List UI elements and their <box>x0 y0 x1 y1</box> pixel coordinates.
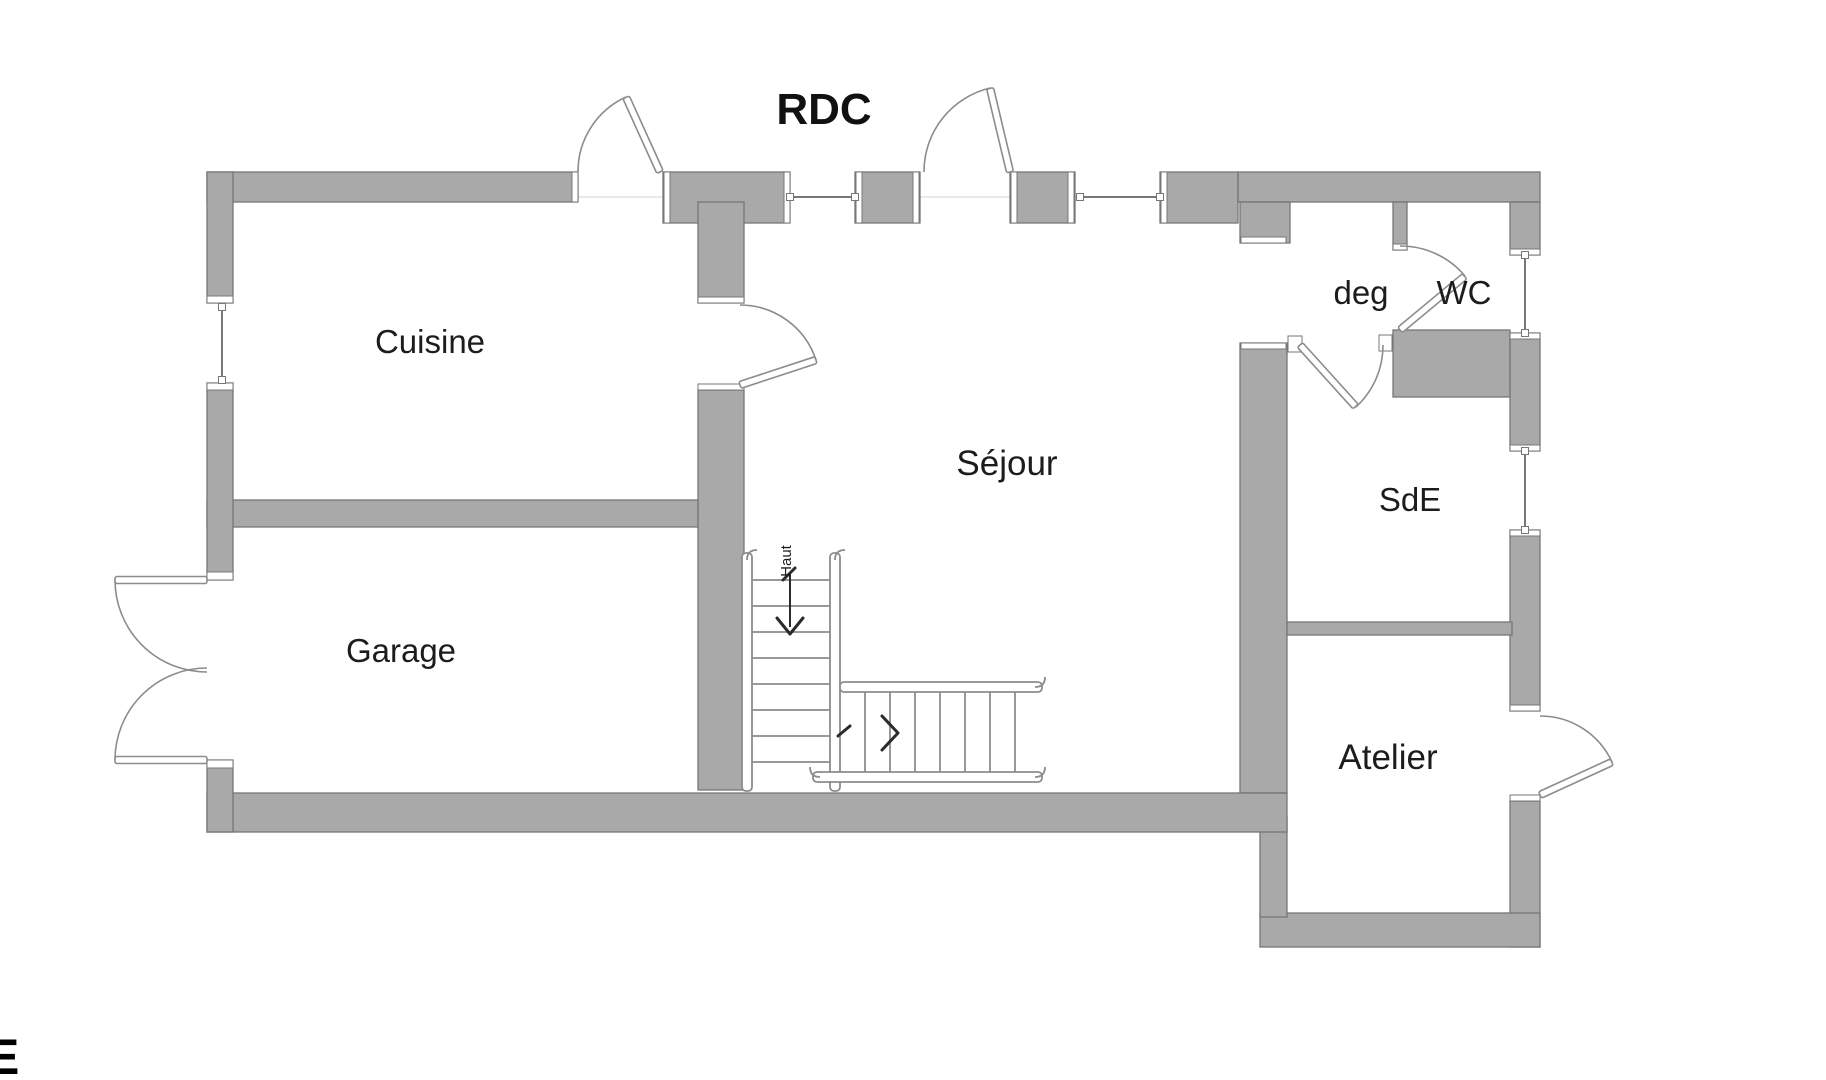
window-nub <box>219 377 226 384</box>
opening-jamb <box>207 296 233 303</box>
garage-double-door <box>115 577 207 764</box>
wall-segment <box>855 172 920 223</box>
opening-jamb <box>1241 237 1286 243</box>
wall-segment <box>698 202 744 303</box>
wall-segment <box>207 172 578 202</box>
door-cuisine-sejour <box>739 305 817 388</box>
wall-segment <box>1510 202 1540 255</box>
page-title: RDC <box>776 85 871 134</box>
stair-rail <box>742 553 752 791</box>
room-label-sde: SdE <box>1379 481 1441 518</box>
windows <box>219 194 1529 534</box>
door-leaf <box>623 96 663 174</box>
opening-jamb <box>1379 335 1392 351</box>
wall-segment <box>698 390 744 790</box>
window-nub <box>1157 194 1164 201</box>
floor-plan: Haut RDC Cuisine Garage Séjour deg WC Sd… <box>0 0 1826 1080</box>
window-nub <box>1522 448 1529 455</box>
window-nub <box>1522 527 1529 534</box>
door-atelier-exterior <box>1539 716 1614 798</box>
window-nub <box>1522 252 1529 259</box>
opening-jambs <box>207 172 1540 801</box>
stair-treads <box>752 580 1015 772</box>
window-nub <box>1522 330 1529 337</box>
room-label-wc: WC <box>1437 274 1492 311</box>
door-leaf <box>1297 343 1358 409</box>
window-nub <box>787 194 794 201</box>
opening-jamb <box>1510 795 1540 801</box>
wall-segment <box>1238 172 1540 202</box>
wall-segment <box>1240 343 1287 793</box>
window-nub <box>1077 194 1084 201</box>
opening-jamb <box>1510 705 1540 711</box>
door-swing-arc <box>1540 716 1612 762</box>
door-entrance <box>924 88 1013 173</box>
opening-jamb <box>1393 244 1407 250</box>
clipped-letter: E <box>0 1029 19 1080</box>
stair-direction-label: Haut <box>778 544 795 577</box>
door-leaf <box>115 577 207 584</box>
opening-jamb <box>664 172 670 223</box>
wall-segment <box>1510 530 1540 711</box>
wall-segment <box>1510 333 1540 451</box>
opening-jamb <box>698 384 744 390</box>
opening-jamb <box>572 172 578 202</box>
room-label-atelier: Atelier <box>1338 738 1438 777</box>
wall-segment <box>207 172 233 303</box>
wall-segment <box>207 793 1287 832</box>
door-swing-arc <box>924 88 990 172</box>
door-cuisine-exterior <box>578 96 663 174</box>
opening-jamb <box>913 172 919 223</box>
door-deg-sde <box>1297 343 1383 409</box>
room-label-cuisine: Cuisine <box>375 323 485 360</box>
wall-segment <box>1287 622 1512 635</box>
door-swing-arc <box>578 97 626 172</box>
door-swing-arc <box>1400 246 1465 276</box>
opening-jamb <box>207 760 233 768</box>
stair-rail <box>840 682 1042 692</box>
door-swing-arc <box>115 668 207 760</box>
door-leaf <box>987 88 1014 173</box>
stair-rail <box>813 772 1042 782</box>
wall-segment <box>207 383 233 580</box>
opening-jamb <box>207 383 233 390</box>
wall-segment <box>207 500 698 527</box>
wall-segment <box>207 760 233 832</box>
door-leaf <box>115 757 207 764</box>
window-nub <box>219 304 226 311</box>
room-label-deg: deg <box>1333 274 1388 311</box>
window-nub <box>852 194 859 201</box>
door-leaf <box>1539 759 1614 798</box>
floor-plan-canvas: Haut RDC Cuisine Garage Séjour deg WC Sd… <box>0 0 1826 1080</box>
opening-jamb <box>698 297 744 303</box>
wall-segment <box>1393 202 1407 250</box>
stair-rail <box>830 553 840 791</box>
opening-jamb <box>1011 172 1017 223</box>
door-swing-arc <box>115 580 207 672</box>
wall-segment <box>1260 913 1540 947</box>
wall-segment <box>1160 172 1238 223</box>
door-swing-arc <box>1356 345 1383 407</box>
wall-segment <box>1010 172 1075 223</box>
door-leaf <box>739 357 817 389</box>
opening-jamb <box>1068 172 1074 223</box>
wall-segment <box>1393 330 1510 397</box>
opening-jamb <box>207 572 233 580</box>
staircase: Haut <box>742 544 1045 791</box>
opening-jamb <box>1241 343 1286 349</box>
room-label-garage: Garage <box>346 632 456 669</box>
room-label-sejour: Séjour <box>956 444 1058 483</box>
door-swing-arc <box>740 305 816 360</box>
